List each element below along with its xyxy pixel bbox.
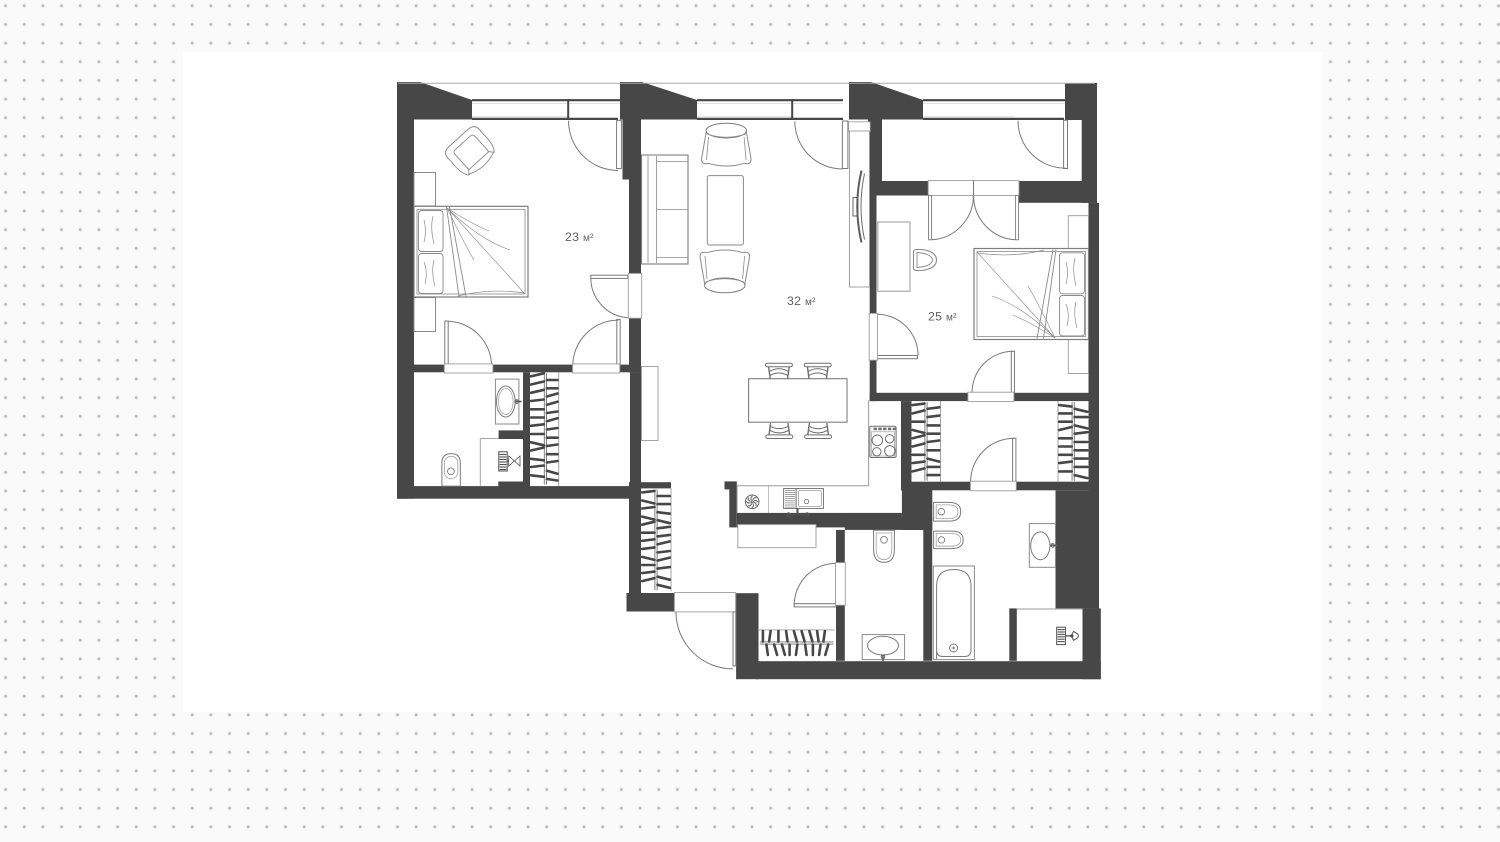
svg-text:32 м²: 32 м² xyxy=(787,294,816,308)
svg-text:25 м²: 25 м² xyxy=(928,310,957,324)
svg-text:23 м²: 23 м² xyxy=(565,230,594,244)
